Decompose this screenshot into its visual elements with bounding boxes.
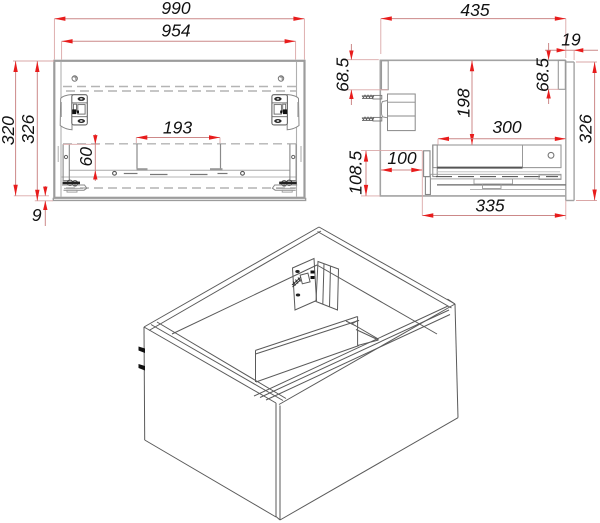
svg-text:335: 335 (475, 195, 504, 215)
svg-text:19: 19 (561, 30, 581, 50)
svg-text:68.5: 68.5 (532, 58, 552, 92)
svg-text:435: 435 (460, 0, 489, 20)
svg-text:108.5: 108.5 (346, 151, 366, 195)
svg-text:990: 990 (161, 0, 190, 18)
svg-text:326: 326 (575, 114, 595, 143)
svg-text:326: 326 (18, 114, 38, 143)
svg-text:300: 300 (492, 117, 521, 137)
svg-text:9: 9 (32, 205, 42, 225)
svg-text:320: 320 (0, 116, 18, 145)
svg-text:68.5: 68.5 (333, 58, 353, 92)
svg-text:198: 198 (454, 88, 474, 117)
svg-text:954: 954 (161, 21, 190, 41)
svg-text:60: 60 (76, 147, 96, 167)
svg-text:193: 193 (163, 118, 192, 138)
